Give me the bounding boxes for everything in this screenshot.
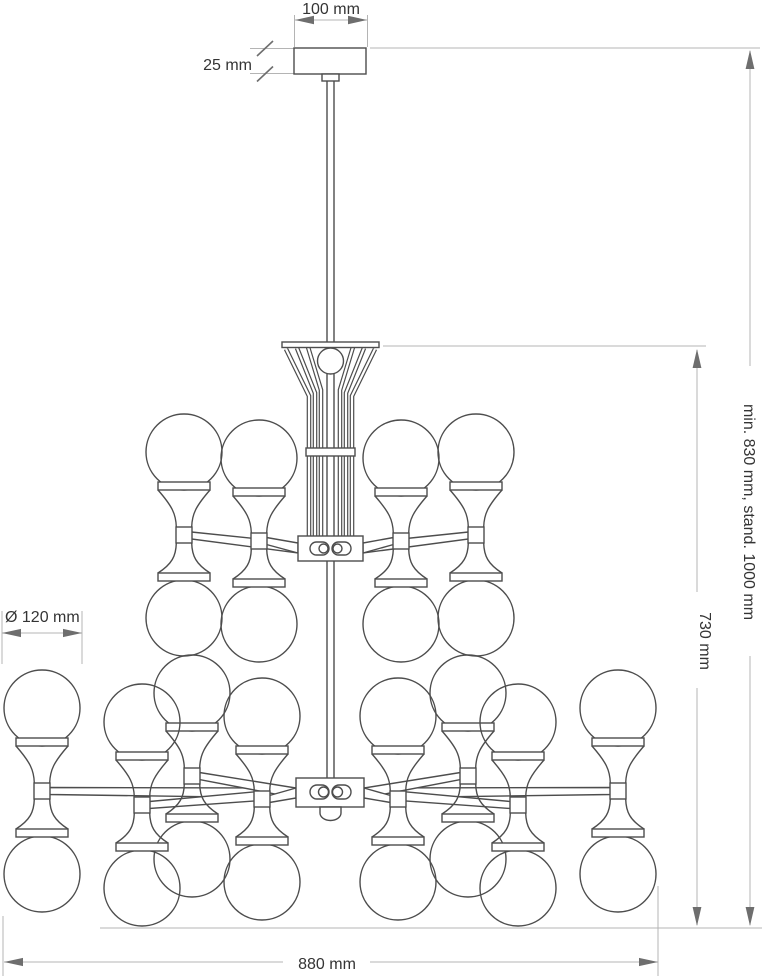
crown-top-bar <box>282 342 379 348</box>
arrow-up-icon <box>746 50 755 69</box>
dimension-body-width: 880 mm <box>3 886 658 976</box>
chandelier-dimension-drawing: 100 mm 25 mm Ø 120 mm 880 mm 730 mm <box>0 0 768 979</box>
lower-hub <box>296 778 364 821</box>
drawing-canvas: 100 mm 25 mm Ø 120 mm 880 mm 730 mm <box>0 0 768 979</box>
body-width-label: 880 mm <box>298 956 356 973</box>
canopy-connector <box>322 74 339 81</box>
ceiling-canopy <box>294 48 366 81</box>
canopy-height-label: 25 mm <box>203 57 252 74</box>
arrow-left-icon <box>4 958 23 966</box>
arrow-right-icon <box>63 629 82 637</box>
total-height-label: min. 830 mm, stand. 1000 mm <box>740 404 757 620</box>
dimension-globe-diameter: Ø 120 mm <box>2 609 82 664</box>
bottom-finial <box>320 807 341 821</box>
dimension-body-height: 730 mm <box>100 346 762 928</box>
canopy-width-label: 100 mm <box>302 1 360 18</box>
suspension-rod <box>327 80 334 779</box>
arrow-up-icon <box>693 349 702 368</box>
arrow-down-icon <box>746 907 755 926</box>
dimension-canopy-width: 100 mm <box>295 1 368 47</box>
arrow-right-icon <box>639 958 658 966</box>
arrow-left-icon <box>2 629 21 637</box>
dimension-canopy-height: 25 mm <box>203 41 295 82</box>
upper-hub <box>298 536 363 561</box>
globe-diameter-label: Ø 120 mm <box>5 609 80 626</box>
body-height-label: 730 mm <box>696 612 713 670</box>
crown-collar <box>306 448 355 456</box>
crown-ball <box>318 348 344 374</box>
arrow-down-icon <box>693 907 702 926</box>
